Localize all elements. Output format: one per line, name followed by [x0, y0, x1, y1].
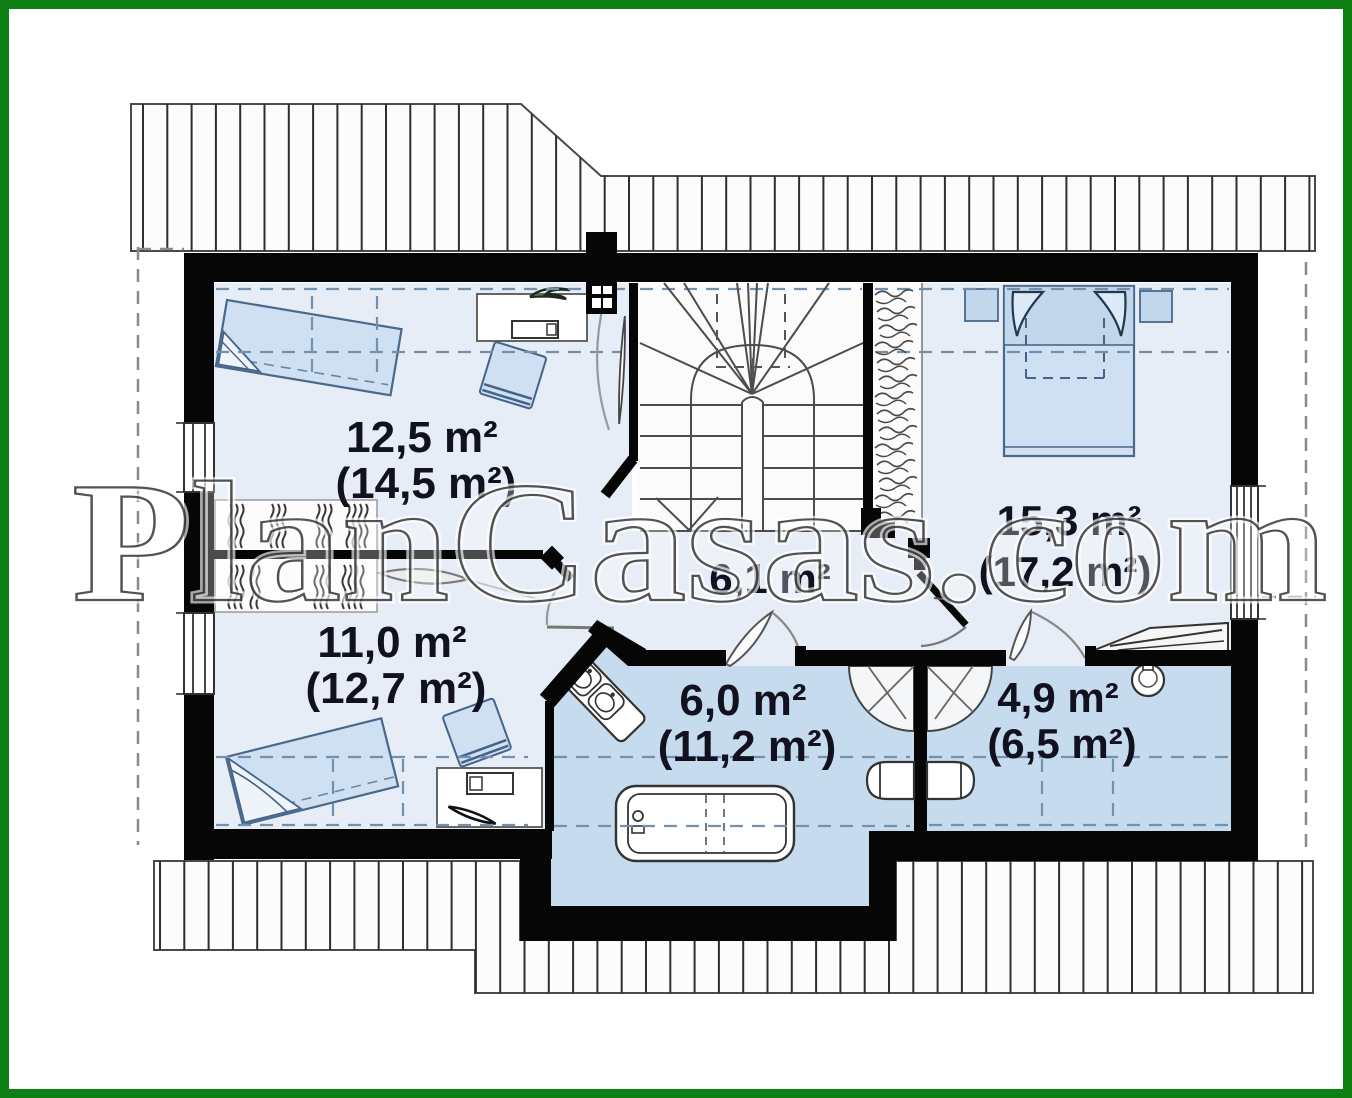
svg-text:4,9 m²: 4,9 m²	[997, 674, 1118, 721]
svg-text:PlanCasas.com: PlanCasas.com	[72, 448, 1328, 638]
svg-text:(12,7 m²): (12,7 m²)	[306, 664, 487, 713]
svg-text:6,0 m²: 6,0 m²	[679, 676, 806, 725]
svg-text:(11,2 m²): (11,2 m²)	[658, 722, 837, 771]
svg-text:(6,5 m²): (6,5 m²)	[987, 720, 1136, 767]
